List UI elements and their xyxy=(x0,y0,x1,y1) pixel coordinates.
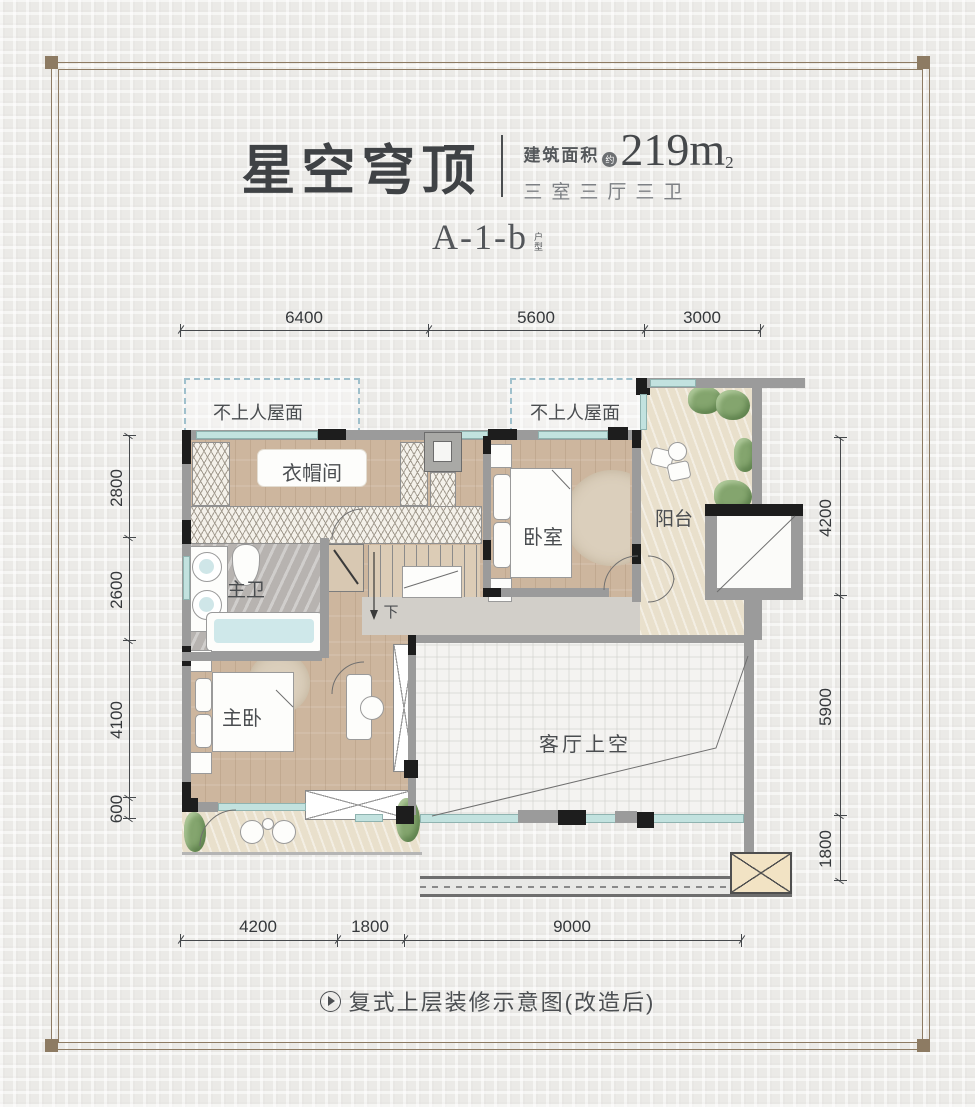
page-title: 星空穹顶 xyxy=(241,126,481,205)
dimension-tick xyxy=(123,640,136,641)
dimension-tick xyxy=(123,435,136,436)
wall-column xyxy=(318,429,346,440)
shaft-wall-top xyxy=(705,504,803,516)
wall-segment xyxy=(483,436,491,592)
pillow xyxy=(195,678,212,712)
wall-column xyxy=(632,544,641,564)
frame-corner xyxy=(917,1039,930,1052)
dimension-value: 2800 xyxy=(107,438,127,538)
lower-balcony-table xyxy=(262,818,274,830)
dimension-value: 4200 xyxy=(208,917,308,937)
wardrobe xyxy=(190,506,482,544)
wall-column xyxy=(182,520,191,544)
wardrobe xyxy=(192,442,230,506)
caption-row: 复式上层装修示意图(改造后) xyxy=(0,985,975,1017)
dimension-value: 5900 xyxy=(816,657,836,757)
dimension-tick xyxy=(834,595,847,596)
wall-column xyxy=(182,430,191,464)
window xyxy=(650,379,696,387)
wall-column xyxy=(558,810,586,825)
desk-chair xyxy=(360,696,384,720)
sink-basin xyxy=(199,559,214,574)
dimension-value: 1800 xyxy=(816,799,836,899)
plant xyxy=(716,390,750,420)
unit-code: A-1-b xyxy=(432,216,528,258)
window xyxy=(218,803,306,811)
plant xyxy=(184,812,206,852)
wall-segment xyxy=(182,430,191,812)
dimension-line-left xyxy=(129,435,130,818)
window xyxy=(355,814,383,822)
dimension-tick xyxy=(760,324,761,337)
nightstand xyxy=(488,444,512,468)
wall-column xyxy=(182,798,198,812)
area-approx-badge: 约 xyxy=(602,152,617,167)
wall-column xyxy=(404,760,418,778)
dimension-value: 5600 xyxy=(486,308,586,328)
wall-column xyxy=(632,430,641,448)
header-divider xyxy=(501,135,503,197)
unit-suffix-top: 户 xyxy=(534,232,543,242)
dimension-value: 3000 xyxy=(652,308,752,328)
wall-segment xyxy=(632,430,641,602)
wall-segment xyxy=(518,810,558,823)
wall-segment xyxy=(483,588,609,597)
lower-balcony-chair xyxy=(272,820,296,844)
dimension-line-bottom xyxy=(180,940,741,941)
window xyxy=(640,394,647,430)
frame-corner xyxy=(45,1039,58,1052)
unit-suffix-bottom: 型 xyxy=(534,242,543,252)
dimension-value: 2600 xyxy=(107,540,127,640)
label-master-bath: 主卫 xyxy=(227,575,265,602)
label-roof-left: 不上人屋面 xyxy=(213,399,303,425)
label-living-void: 客厅上空 xyxy=(539,728,631,757)
wall-segment xyxy=(198,802,218,812)
dimension-value: 6400 xyxy=(254,308,354,328)
dimension-value: 600 xyxy=(107,759,127,859)
wall-segment xyxy=(408,635,752,643)
stair-balustrade xyxy=(402,566,462,598)
shaft-interior xyxy=(717,516,791,588)
balcony-table xyxy=(668,442,687,461)
frame-corner xyxy=(45,56,58,69)
caption-text: 复式上层装修示意图(改造后) xyxy=(349,985,656,1017)
wall-segment xyxy=(320,538,329,658)
pillow xyxy=(195,714,212,748)
flue-duct-inner xyxy=(433,441,452,462)
dimension-value: 4100 xyxy=(107,670,127,770)
label-cloakroom: 衣帽间 xyxy=(282,457,342,486)
wall-column xyxy=(483,436,491,454)
window xyxy=(196,431,318,439)
frame-corner xyxy=(917,56,930,69)
window xyxy=(183,556,190,600)
label-balcony: 阳台 xyxy=(655,504,693,531)
dimension-value: 1800 xyxy=(320,917,420,937)
wall-edge xyxy=(182,852,422,855)
wall-segment xyxy=(408,635,416,815)
wall-segment xyxy=(744,600,754,892)
wall-column xyxy=(488,429,517,440)
dimension-tick xyxy=(180,934,181,947)
dimension-line-right xyxy=(840,437,841,880)
stair-closet xyxy=(328,544,364,592)
header: 星空穹顶 建筑面积 约 219m 2 三室三厅三卫 xyxy=(0,126,975,205)
sink-basin xyxy=(199,597,214,612)
wall-segment xyxy=(182,652,322,661)
area-prefix: 建筑面积 xyxy=(523,141,599,166)
nightstand xyxy=(190,752,212,774)
pillow xyxy=(493,474,511,520)
room-spec: 三室三厅三卫 xyxy=(523,177,733,204)
unit-code-row: A-1-b 户 型 xyxy=(0,216,975,258)
dimension-tick xyxy=(644,324,645,337)
header-info: 建筑面积 约 219m 2 三室三厅三卫 xyxy=(523,127,733,204)
dimension-line-top xyxy=(180,330,760,331)
wall-column xyxy=(483,588,501,597)
wall-column xyxy=(608,427,628,440)
dimension-value: 4200 xyxy=(816,468,836,568)
play-circle-icon xyxy=(320,991,341,1012)
window xyxy=(538,431,608,439)
entry-door-box xyxy=(730,852,792,894)
wall-segment xyxy=(615,811,637,823)
wall-column xyxy=(396,806,414,824)
void-edge-slab xyxy=(362,597,640,635)
dimension-value: 9000 xyxy=(522,917,622,937)
area-exponent: 2 xyxy=(725,153,734,173)
lower-balcony-chair xyxy=(240,820,264,844)
pillow xyxy=(493,522,511,568)
wall-column xyxy=(483,540,491,560)
bathtub-basin xyxy=(214,619,314,643)
dimension-tick xyxy=(741,934,742,947)
label-roof-right: 不上人屋面 xyxy=(530,399,620,425)
label-stair-down: 下 xyxy=(383,601,398,622)
label-master-bedroom: 主卧 xyxy=(222,702,262,731)
dimension-tick xyxy=(180,324,181,337)
dimension-tick xyxy=(834,437,847,438)
dimension-tick xyxy=(428,324,429,337)
area-value: 219m xyxy=(620,127,725,173)
wall-column xyxy=(408,635,416,655)
label-bedroom: 卧室 xyxy=(523,521,563,550)
floorplan-page: 星空穹顶 建筑面积 约 219m 2 三室三厅三卫 A-1-b 户 型 xyxy=(0,0,975,1107)
wall-column xyxy=(637,812,654,828)
